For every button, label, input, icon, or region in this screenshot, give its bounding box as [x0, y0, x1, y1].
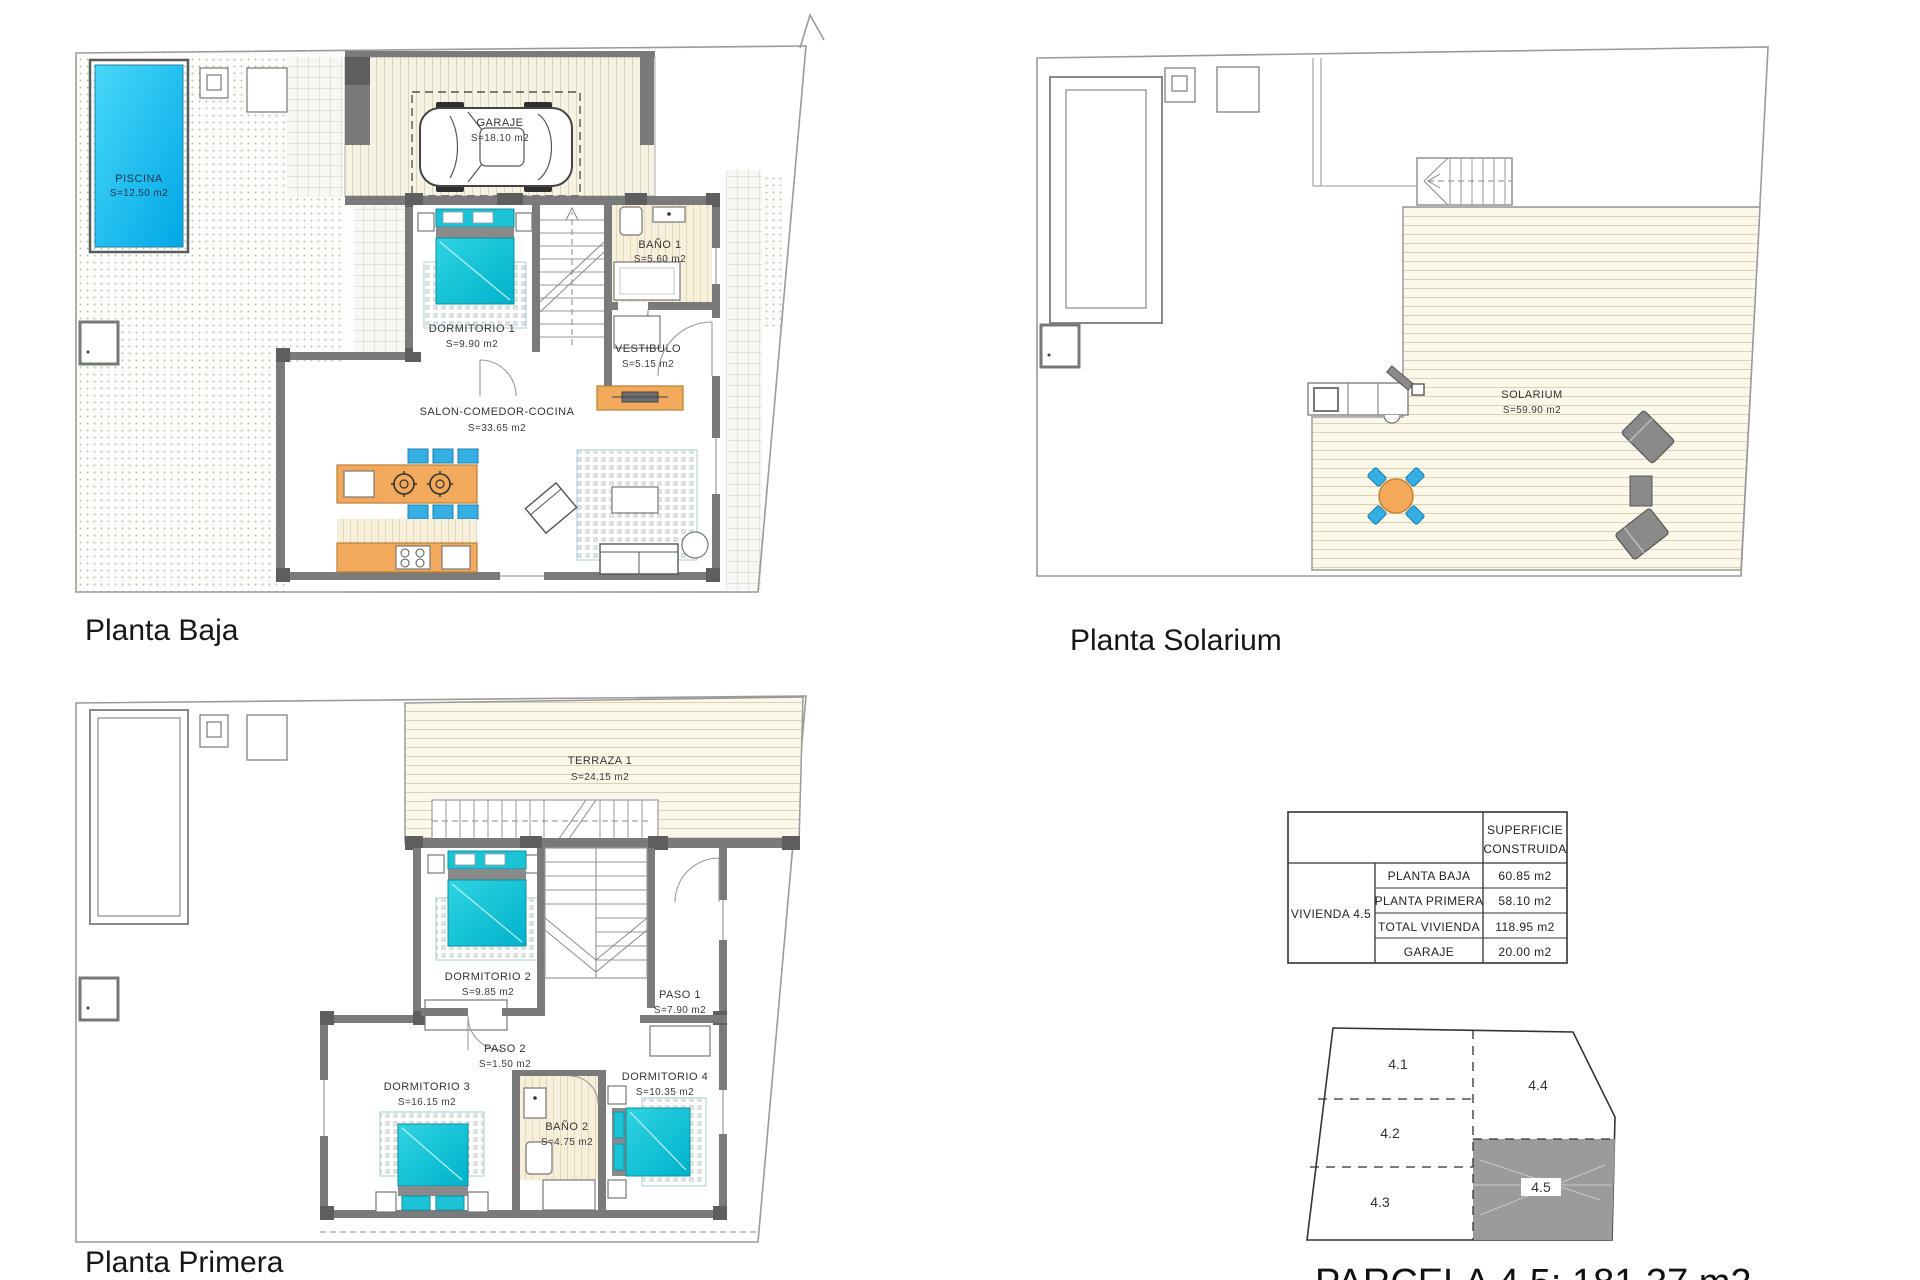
plan-planta-primera: TERRAZA 1 S=24.15 m2: [76, 696, 806, 1279]
table-row-label: VIVIENDA 4.5: [1291, 907, 1371, 921]
entry-door-gap: [712, 318, 720, 376]
floor-plan-sheet: PISCINA S=12.50 m2 JARDIN S=56.95 m2: [0, 0, 1920, 1280]
door-gap: [618, 302, 648, 310]
room-label: DORMITORIO 3: [384, 1081, 470, 1093]
room-vestibulo: VESTIBULO S=5.15 m2: [597, 316, 720, 410]
stool: [408, 449, 428, 463]
stool: [458, 505, 478, 519]
utility-box: [80, 978, 118, 1020]
stairs: [1417, 158, 1512, 205]
kitchen-counter: [337, 543, 477, 572]
door-gap: [468, 1008, 502, 1016]
stool: [433, 505, 453, 519]
room-area: S=9.85 m2: [462, 987, 514, 998]
stairs: [537, 848, 655, 1008]
garden-box: [247, 68, 287, 112]
pool-outline: [90, 710, 188, 924]
room-area: S=5.60 m2: [634, 254, 686, 265]
table-cell: 60.85 m2: [1498, 869, 1551, 883]
skylight-box: [200, 68, 228, 98]
room-area: S=10.35 m2: [636, 1087, 694, 1098]
plot-boundary-tab: [800, 15, 824, 48]
room-area: S=4.75 m2: [541, 1137, 593, 1148]
room-label: SOLARIUM: [1501, 389, 1562, 401]
room-area: S=18.10 m2: [471, 133, 529, 144]
table-cell: PLANTA PRIMERA: [1375, 894, 1484, 908]
parcel-caption: PARCELA 4.5: 181.37 m2: [1315, 1262, 1752, 1280]
room-dormitorio-4: DORMITORIO 4 S=10.35 m2: [608, 1015, 727, 1198]
room-area: S=16.15 m2: [398, 1097, 456, 1108]
table-cell: 118.95 m2: [1495, 920, 1554, 934]
parcel-diagram: 4.1 4.2 4.3 4.4 4.5 PARCELA 4.5: 181.37 …: [1307, 1028, 1752, 1280]
room-area: S=5.15 m2: [622, 359, 674, 370]
garden-strip: [762, 175, 784, 330]
shower-tray: [543, 1180, 595, 1210]
stool: [408, 505, 428, 519]
room-label: PASO 1: [659, 989, 701, 1001]
garden-box: [247, 715, 287, 760]
utility-box: [1041, 325, 1079, 367]
parcel-label: 4.3: [1370, 1194, 1390, 1210]
room-area: S=9.90 m2: [446, 339, 498, 350]
room-label: SALON-COMEDOR-COCINA: [420, 406, 575, 418]
table-cell: PLANTA BAJA: [1388, 869, 1471, 883]
stairs: [532, 196, 612, 392]
pool-outline: [1050, 77, 1162, 323]
room-dormitorio-3: DORMITORIO 3 S=16.15 m2: [376, 1081, 488, 1212]
room-area: S=33.65 m2: [468, 423, 526, 434]
room-label: GARAJE: [476, 117, 523, 129]
armchair: [525, 483, 576, 533]
room-label: DORMITORIO 4: [622, 1071, 708, 1083]
stool: [458, 449, 478, 463]
parcel-label: 4.4: [1528, 1077, 1548, 1093]
side-table: [682, 532, 708, 558]
room-dormitorio-1: DORMITORIO 1 S=9.90 m2: [413, 205, 532, 352]
room-bano-2: BAÑO 2 S=4.75 m2: [512, 1070, 606, 1218]
room-label: BAÑO 2: [545, 1120, 588, 1133]
utility-box: [80, 322, 118, 364]
room-paso-1: PASO 1 S=7.90 m2: [654, 858, 719, 1016]
door-post: [1412, 384, 1424, 395]
kitchen-sink: [442, 546, 470, 569]
table-cell: 20.00 m2: [1498, 945, 1551, 959]
plan-title-solarium: Planta Solarium: [1070, 624, 1282, 657]
table-cell: 58.10 m2: [1498, 894, 1551, 908]
garage: GARAJE S=18.10 m2: [345, 51, 655, 196]
table-cell: TOTAL VIVIENDA: [1378, 920, 1480, 934]
sink: [524, 1088, 546, 1118]
room-area: S=24.15 m2: [571, 772, 629, 783]
parcel-label: 4.1: [1388, 1056, 1408, 1072]
plan-planta-solarium: SOLARIUM S=59.90 m2 Planta Solarium: [1037, 47, 1768, 657]
room-label: BAÑO 1: [638, 238, 681, 251]
parcel-label: 4.5: [1531, 1179, 1551, 1195]
stairs-terraza: [432, 800, 658, 843]
plan-title-primera: Planta Primera: [85, 1246, 284, 1279]
parcel-label: 4.2: [1380, 1125, 1400, 1141]
prep-sink: [344, 471, 374, 497]
room-dormitorio-2: DORMITORIO 2 S=9.85 m2: [421, 848, 540, 1030]
kitchen-island: [337, 449, 478, 519]
toilet: [620, 207, 642, 235]
roof-box: [1217, 67, 1259, 112]
bedroom-door: [480, 360, 516, 396]
skylight-box: [1165, 68, 1195, 102]
room-area: S=7.90 m2: [654, 1005, 706, 1016]
plan-title-baja: Planta Baja: [85, 614, 239, 647]
room-label: VESTIBULO: [615, 343, 681, 355]
coffee-table: [612, 487, 658, 513]
stool: [433, 449, 453, 463]
room-area: S=1.50 m2: [479, 1059, 531, 1070]
table-cell: GARAJE: [1404, 945, 1454, 959]
tv-sideboard: [597, 386, 683, 410]
room-label: PISCINA: [115, 173, 163, 185]
deck-side-table: [1630, 476, 1652, 506]
table-header-line1: SUPERFICIE: [1487, 823, 1563, 837]
plan-planta-baja: PISCINA S=12.50 m2 JARDIN S=56.95 m2: [76, 15, 824, 647]
room-label: TERRAZA 1: [568, 755, 632, 767]
solarium-deck: SOLARIUM S=59.90 m2: [1308, 207, 1760, 570]
skylight-box: [200, 715, 228, 747]
table-header-line2: CONSTRUIDA: [1483, 842, 1566, 856]
room-label: PASO 2: [484, 1043, 526, 1055]
patio-tiles: [726, 170, 762, 590]
kitchen-floor: [337, 519, 477, 543]
door-arc: [675, 858, 719, 902]
room-area: S=59.90 m2: [1503, 405, 1561, 416]
cooktop: [396, 546, 430, 569]
room-area: S=12.50 m2: [110, 188, 168, 199]
patio-tiles: [287, 57, 343, 197]
floor-plan-drawing: PISCINA S=12.50 m2 JARDIN S=56.95 m2: [0, 0, 1920, 1280]
terraza: TERRAZA 1 S=24.15 m2: [405, 697, 803, 843]
patio-tiles: [354, 205, 413, 360]
sofa: [600, 544, 678, 574]
car: [420, 102, 572, 192]
closet: [650, 1026, 710, 1056]
room-label: DORMITORIO 1: [429, 323, 515, 335]
pool: PISCINA S=12.50 m2: [90, 60, 188, 252]
surface-table: SUPERFICIE CONSTRUIDA VIVIENDA 4.5 PLANT…: [1288, 812, 1567, 963]
room-label: DORMITORIO 2: [445, 971, 531, 983]
